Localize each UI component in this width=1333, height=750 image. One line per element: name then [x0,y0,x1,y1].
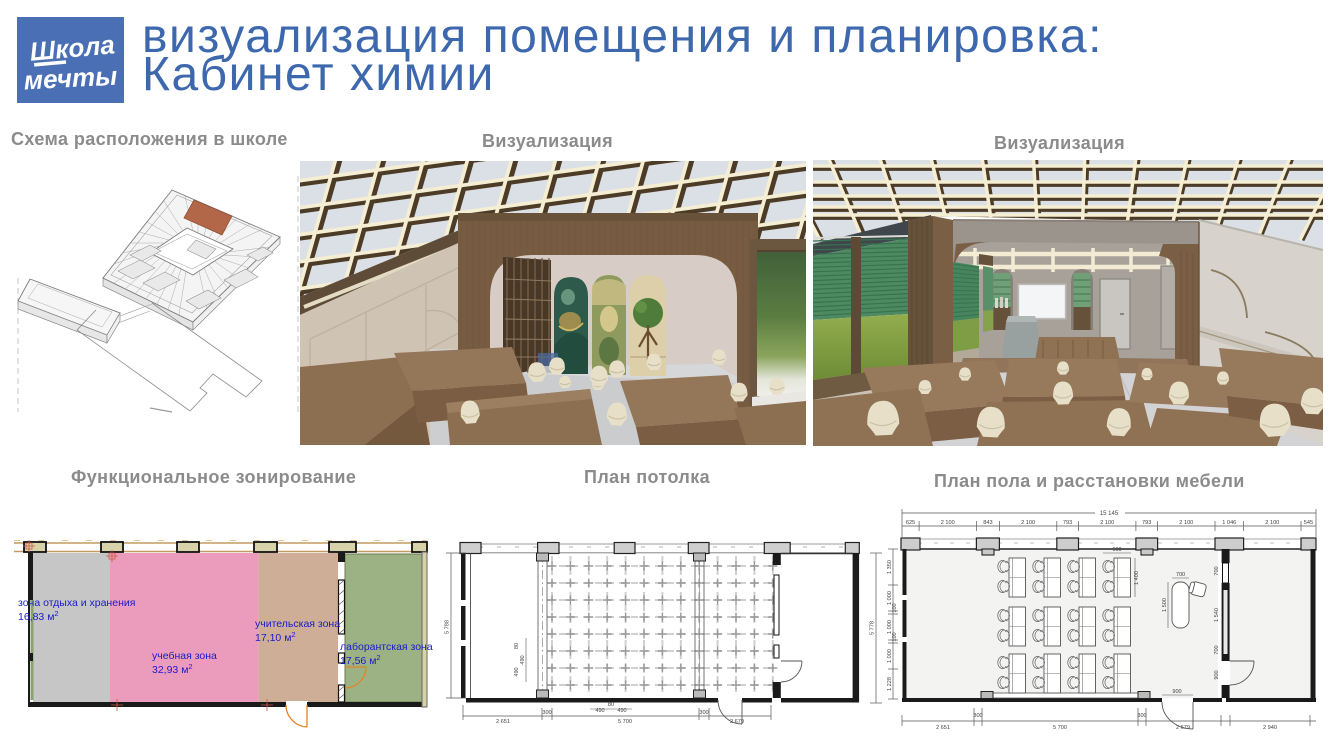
svg-text:учебная зона: учебная зона [152,650,217,662]
svg-text:700: 700 [1214,566,1220,575]
svg-text:900: 900 [1172,689,1181,695]
svg-text:300: 300 [1137,713,1146,719]
svg-text:2 100: 2 100 [1021,520,1035,526]
svg-text:545: 545 [1304,520,1313,526]
svg-text:490: 490 [520,655,526,664]
svg-text:80: 80 [608,702,614,708]
svg-text:700: 700 [1214,645,1220,654]
svg-text:1 350: 1 350 [887,560,893,574]
svg-text:1 400: 1 400 [1134,571,1140,585]
svg-text:2 100: 2 100 [1179,520,1193,526]
svg-text:700: 700 [1176,572,1185,578]
svg-text:793: 793 [1142,520,1151,526]
svg-text:2 940: 2 940 [1263,725,1277,731]
svg-text:2 100: 2 100 [1265,520,1279,526]
svg-text:2 651: 2 651 [936,725,950,731]
svg-text:16,83 м2: 16,83 м2 [18,609,59,623]
svg-text:17,56 м2: 17,56 м2 [340,653,381,667]
svg-text:5 778: 5 778 [870,621,876,635]
svg-text:900: 900 [1214,670,1220,679]
svg-text:300: 300 [542,710,551,716]
svg-text:2 679: 2 679 [1176,725,1190,731]
svg-text:1 000: 1 000 [887,649,893,663]
svg-text:17,10 м2: 17,10 м2 [255,630,296,644]
svg-text:5 700: 5 700 [1053,725,1067,731]
svg-text:80: 80 [514,643,520,649]
svg-text:2 100: 2 100 [941,520,955,526]
svg-text:1 500: 1 500 [1162,598,1168,612]
svg-text:100: 100 [892,603,898,612]
svg-text:1 540: 1 540 [1214,608,1220,622]
svg-text:625: 625 [906,520,915,526]
svg-text:5 700: 5 700 [618,719,632,725]
svg-text:300: 300 [699,710,708,716]
svg-text:2 679: 2 679 [730,719,744,725]
svg-text:300: 300 [973,713,982,719]
svg-text:лаборантская зона: лаборантская зона [340,641,433,653]
svg-text:32,93 м2: 32,93 м2 [152,662,193,676]
svg-text:1 000: 1 000 [887,620,893,634]
svg-text:793: 793 [1063,520,1072,526]
svg-text:843: 843 [983,520,992,526]
svg-text:490: 490 [514,667,520,676]
svg-text:5 788: 5 788 [445,620,451,634]
svg-text:1 046: 1 046 [1222,520,1236,526]
svg-text:1 000: 1 000 [887,591,893,605]
svg-text:2 100: 2 100 [1100,520,1114,526]
svg-text:2 651: 2 651 [496,719,510,725]
svg-text:600: 600 [1112,547,1121,553]
svg-text:100: 100 [892,632,898,641]
svg-text:1 228: 1 228 [887,677,893,691]
svg-text:зона отдыха и хранения: зона отдыха и хранения [18,597,135,609]
svg-text:15 145: 15 145 [1100,511,1119,517]
svg-text:учительская зона: учительская зона [255,618,340,630]
